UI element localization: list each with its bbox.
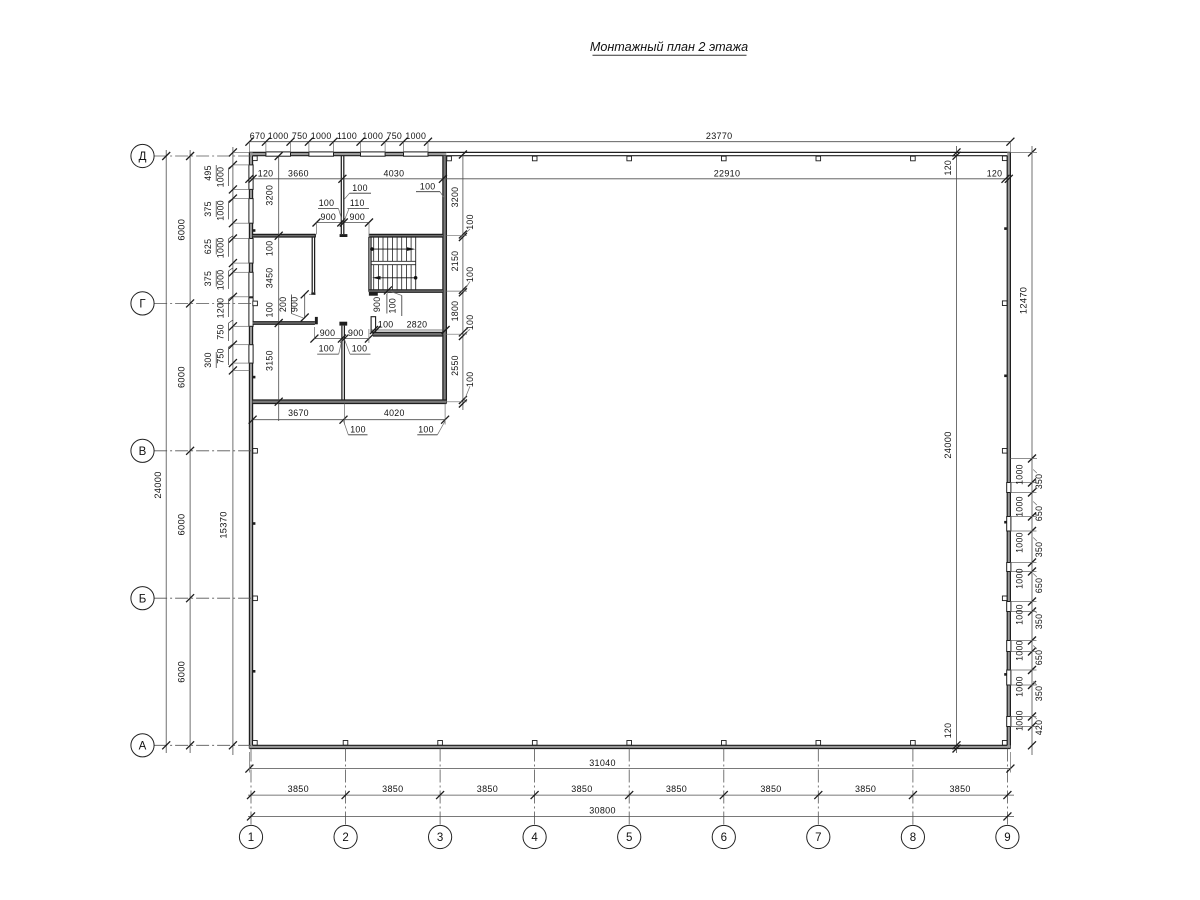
svg-text:6000: 6000 xyxy=(177,514,187,536)
svg-text:350: 350 xyxy=(1034,614,1044,630)
svg-text:3200: 3200 xyxy=(265,185,275,206)
svg-text:3: 3 xyxy=(437,832,443,844)
svg-text:9: 9 xyxy=(1004,832,1010,844)
svg-text:650: 650 xyxy=(1034,578,1044,594)
svg-text:100: 100 xyxy=(319,344,335,354)
svg-text:100: 100 xyxy=(465,315,475,331)
svg-text:100: 100 xyxy=(465,372,475,388)
svg-text:Д: Д xyxy=(139,151,147,163)
svg-text:750: 750 xyxy=(387,131,403,141)
svg-text:100: 100 xyxy=(420,181,436,191)
svg-text:1000: 1000 xyxy=(1015,532,1025,553)
svg-text:3660: 3660 xyxy=(288,168,309,178)
svg-text:3850: 3850 xyxy=(288,784,309,794)
svg-text:1000: 1000 xyxy=(1015,710,1025,731)
svg-text:350: 350 xyxy=(1034,542,1044,558)
svg-text:900: 900 xyxy=(348,328,364,338)
svg-text:3850: 3850 xyxy=(949,784,970,794)
svg-text:3850: 3850 xyxy=(477,784,498,794)
svg-text:495: 495 xyxy=(203,165,213,181)
svg-text:625: 625 xyxy=(203,239,213,255)
svg-text:1800: 1800 xyxy=(450,301,460,322)
svg-text:1100: 1100 xyxy=(337,131,357,141)
svg-text:100: 100 xyxy=(352,344,368,354)
svg-text:6000: 6000 xyxy=(177,366,187,388)
svg-text:1000: 1000 xyxy=(1015,604,1025,625)
svg-text:3850: 3850 xyxy=(382,784,403,794)
svg-text:375: 375 xyxy=(203,201,213,217)
svg-text:100: 100 xyxy=(265,302,275,318)
svg-text:Б: Б xyxy=(139,593,147,605)
svg-text:30800: 30800 xyxy=(589,806,616,816)
svg-text:670: 670 xyxy=(250,131,266,141)
svg-text:100: 100 xyxy=(265,241,275,257)
svg-text:1000: 1000 xyxy=(215,237,225,258)
svg-text:120: 120 xyxy=(987,168,1003,178)
svg-text:12470: 12470 xyxy=(1018,287,1028,314)
svg-text:420: 420 xyxy=(1034,720,1044,736)
svg-text:100: 100 xyxy=(465,267,475,283)
svg-text:750: 750 xyxy=(215,348,225,364)
svg-text:100: 100 xyxy=(465,214,475,230)
svg-text:3850: 3850 xyxy=(855,784,876,794)
svg-text:6: 6 xyxy=(721,832,727,844)
svg-text:2550: 2550 xyxy=(450,355,460,376)
svg-text:24000: 24000 xyxy=(943,431,953,458)
svg-text:650: 650 xyxy=(1034,506,1044,522)
svg-text:3850: 3850 xyxy=(571,784,592,794)
svg-text:4030: 4030 xyxy=(384,168,405,178)
svg-text:120: 120 xyxy=(943,160,953,176)
svg-text:1000: 1000 xyxy=(1015,640,1025,661)
svg-text:120: 120 xyxy=(943,723,953,739)
svg-text:6000: 6000 xyxy=(177,219,187,241)
svg-text:А: А xyxy=(139,741,147,753)
svg-text:22910: 22910 xyxy=(714,168,741,178)
svg-text:100: 100 xyxy=(352,183,368,193)
svg-text:3150: 3150 xyxy=(265,350,275,371)
svg-text:1000: 1000 xyxy=(268,131,289,141)
svg-text:350: 350 xyxy=(1034,686,1044,702)
svg-text:5: 5 xyxy=(626,832,632,844)
svg-text:Монтажный план 2 этажа: Монтажный план 2 этажа xyxy=(590,40,748,54)
svg-text:1: 1 xyxy=(248,832,254,844)
svg-text:110: 110 xyxy=(350,198,365,208)
svg-text:100: 100 xyxy=(319,198,335,208)
svg-text:1000: 1000 xyxy=(215,200,225,221)
svg-text:3670: 3670 xyxy=(288,408,309,418)
svg-text:1000: 1000 xyxy=(1015,676,1025,697)
svg-text:650: 650 xyxy=(1034,650,1044,666)
svg-text:6000: 6000 xyxy=(177,661,187,683)
svg-text:4020: 4020 xyxy=(384,408,405,418)
svg-text:100: 100 xyxy=(378,319,394,329)
svg-text:2150: 2150 xyxy=(450,251,460,272)
svg-text:750: 750 xyxy=(292,131,308,141)
svg-text:24000: 24000 xyxy=(153,471,163,498)
svg-text:1000: 1000 xyxy=(405,131,426,141)
svg-text:1000: 1000 xyxy=(1015,464,1025,485)
svg-text:В: В xyxy=(139,446,147,458)
svg-text:1000: 1000 xyxy=(215,167,225,188)
svg-text:23770: 23770 xyxy=(706,131,733,141)
svg-text:1000: 1000 xyxy=(311,131,332,141)
svg-text:300: 300 xyxy=(203,352,213,368)
svg-text:2820: 2820 xyxy=(407,319,428,329)
svg-text:3200: 3200 xyxy=(450,187,460,208)
svg-text:3850: 3850 xyxy=(760,784,781,794)
svg-text:2: 2 xyxy=(342,832,348,844)
svg-text:1200: 1200 xyxy=(215,298,225,319)
svg-text:350: 350 xyxy=(1034,474,1044,490)
svg-text:900: 900 xyxy=(320,328,336,338)
svg-text:31040: 31040 xyxy=(589,758,616,768)
svg-text:120: 120 xyxy=(258,168,274,178)
svg-text:100: 100 xyxy=(418,424,434,434)
svg-text:3850: 3850 xyxy=(666,784,687,794)
svg-text:1000: 1000 xyxy=(1015,496,1025,517)
svg-text:1000: 1000 xyxy=(215,270,225,291)
svg-text:1000: 1000 xyxy=(1015,568,1025,589)
svg-text:100: 100 xyxy=(350,424,366,434)
svg-text:100: 100 xyxy=(387,298,397,314)
svg-text:1000: 1000 xyxy=(362,131,383,141)
svg-text:900: 900 xyxy=(372,297,382,313)
svg-text:375: 375 xyxy=(203,271,213,287)
svg-text:3450: 3450 xyxy=(265,268,275,289)
svg-text:8: 8 xyxy=(910,832,916,844)
svg-text:750: 750 xyxy=(215,324,225,340)
svg-text:900: 900 xyxy=(289,297,299,313)
svg-text:900: 900 xyxy=(350,212,366,222)
svg-text:4: 4 xyxy=(531,832,538,844)
svg-text:7: 7 xyxy=(815,832,821,844)
svg-text:900: 900 xyxy=(321,212,337,222)
svg-text:15370: 15370 xyxy=(219,511,229,538)
svg-text:200: 200 xyxy=(278,297,288,313)
svg-text:Г: Г xyxy=(139,299,146,311)
